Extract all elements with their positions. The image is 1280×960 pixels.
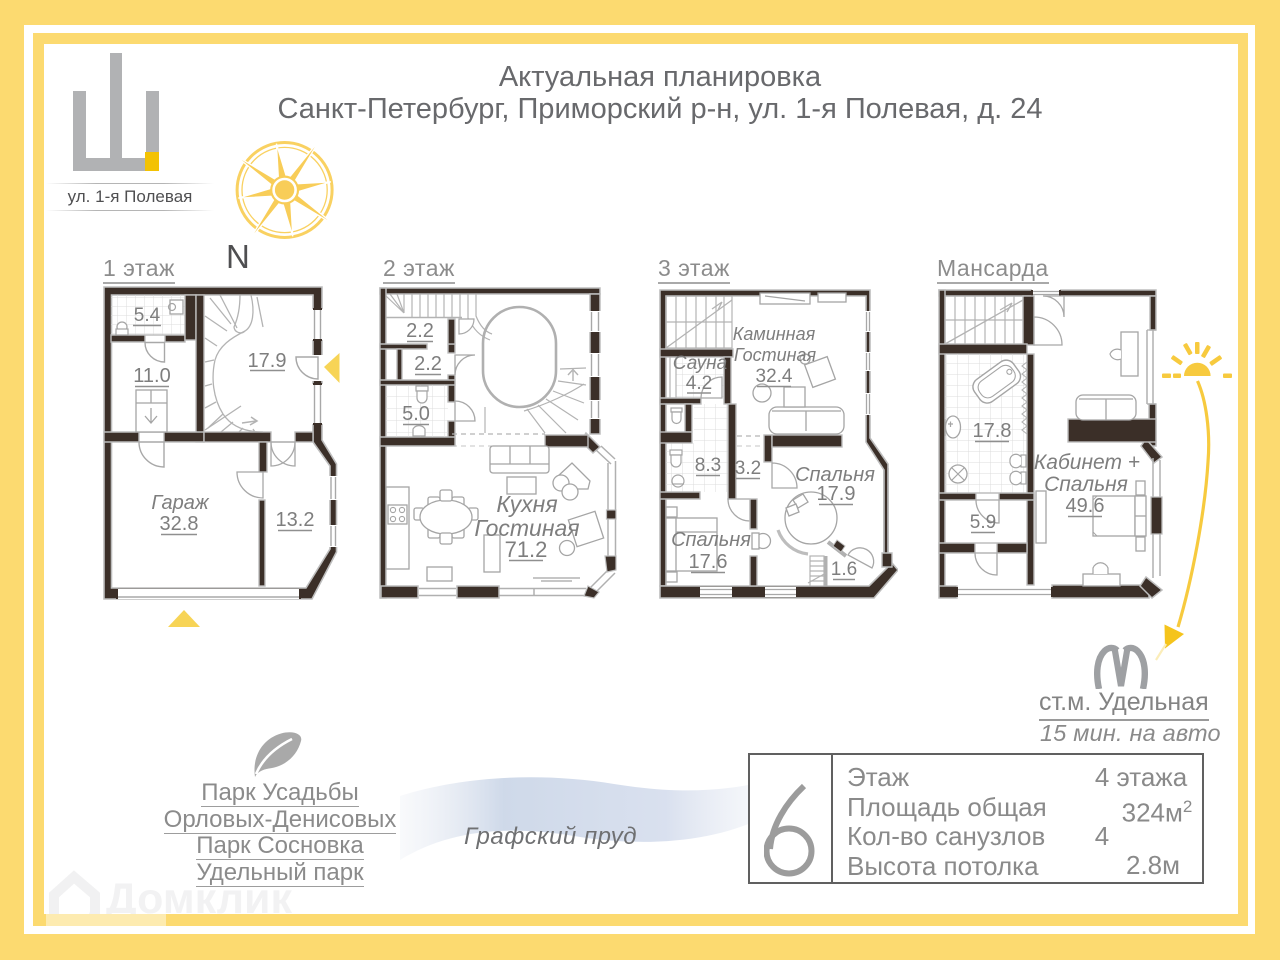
svg-text:32.8: 32.8: [160, 513, 199, 535]
svg-text:17.8: 17.8: [973, 420, 1012, 442]
svg-text:Домклик: Домклик: [106, 875, 292, 914]
svg-text:2.2: 2.2: [414, 353, 442, 375]
svg-text:1.6: 1.6: [831, 559, 857, 580]
svg-text:5.9: 5.9: [970, 512, 996, 533]
svg-text:Гостиная: Гостиная: [734, 345, 817, 365]
svg-text:Кабинет +: Кабинет +: [1034, 451, 1140, 474]
svg-text:32.4: 32.4: [756, 366, 793, 387]
svg-text:2.2: 2.2: [406, 320, 434, 342]
svg-text:Спальня: Спальня: [671, 529, 751, 551]
svg-text:5.0: 5.0: [402, 403, 430, 425]
svg-text:Сауна: Сауна: [673, 353, 727, 374]
svg-text:13.2: 13.2: [276, 509, 315, 531]
svg-text:Каминная: Каминная: [733, 324, 816, 344]
svg-text:17.9: 17.9: [817, 483, 856, 505]
svg-text:3.2: 3.2: [735, 458, 761, 479]
svg-text:4.2: 4.2: [686, 373, 712, 394]
svg-text:11.0: 11.0: [133, 365, 170, 387]
svg-text:5.4: 5.4: [134, 305, 161, 326]
svg-text:Гараж: Гараж: [151, 492, 210, 514]
svg-text:Кухня: Кухня: [496, 491, 557, 517]
svg-text:Спальня: Спальня: [1044, 473, 1128, 496]
svg-text:17.6: 17.6: [689, 551, 728, 573]
svg-text:49.6: 49.6: [1066, 495, 1105, 517]
svg-text:71.2: 71.2: [505, 537, 548, 562]
svg-text:8.3: 8.3: [695, 455, 721, 476]
svg-text:17.9: 17.9: [248, 350, 287, 372]
